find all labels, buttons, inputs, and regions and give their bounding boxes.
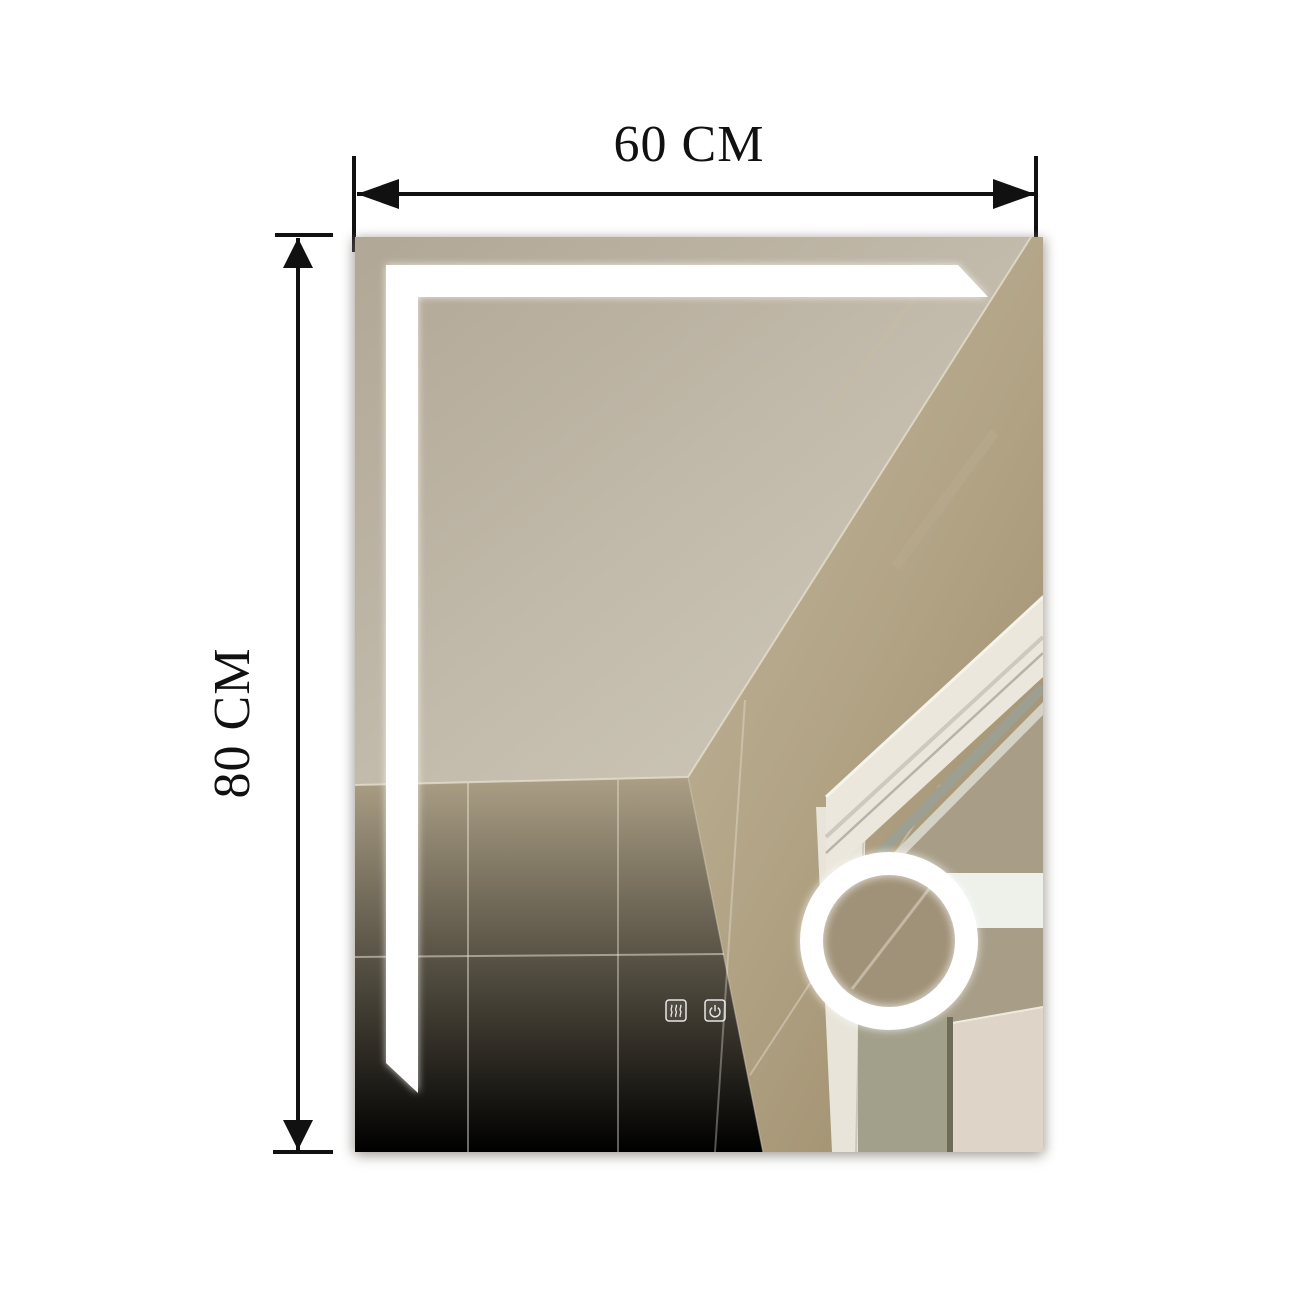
right-arrowhead-icon [993,179,1035,209]
power-button [705,1000,725,1021]
door-panel [952,1007,1043,1152]
width-dimension-line [357,192,1035,196]
mirror-product-photo [355,237,1043,1152]
up-arrowhead-icon [283,238,313,268]
glass-stile [858,1020,947,1152]
down-arrowhead-icon [283,1120,313,1150]
mirror-reflection-scene [355,237,1043,1152]
height-dimension-bottom-tick [273,1150,333,1154]
dark-seam [947,1017,953,1152]
left-arrowhead-icon [357,179,399,209]
width-dimension-label: 60 CM [539,119,839,171]
height-dimension-top-tick [275,233,333,237]
height-dimension-label: 80 CM [207,573,259,873]
defogger-button [666,1000,686,1021]
height-dimension-line [296,238,300,1150]
